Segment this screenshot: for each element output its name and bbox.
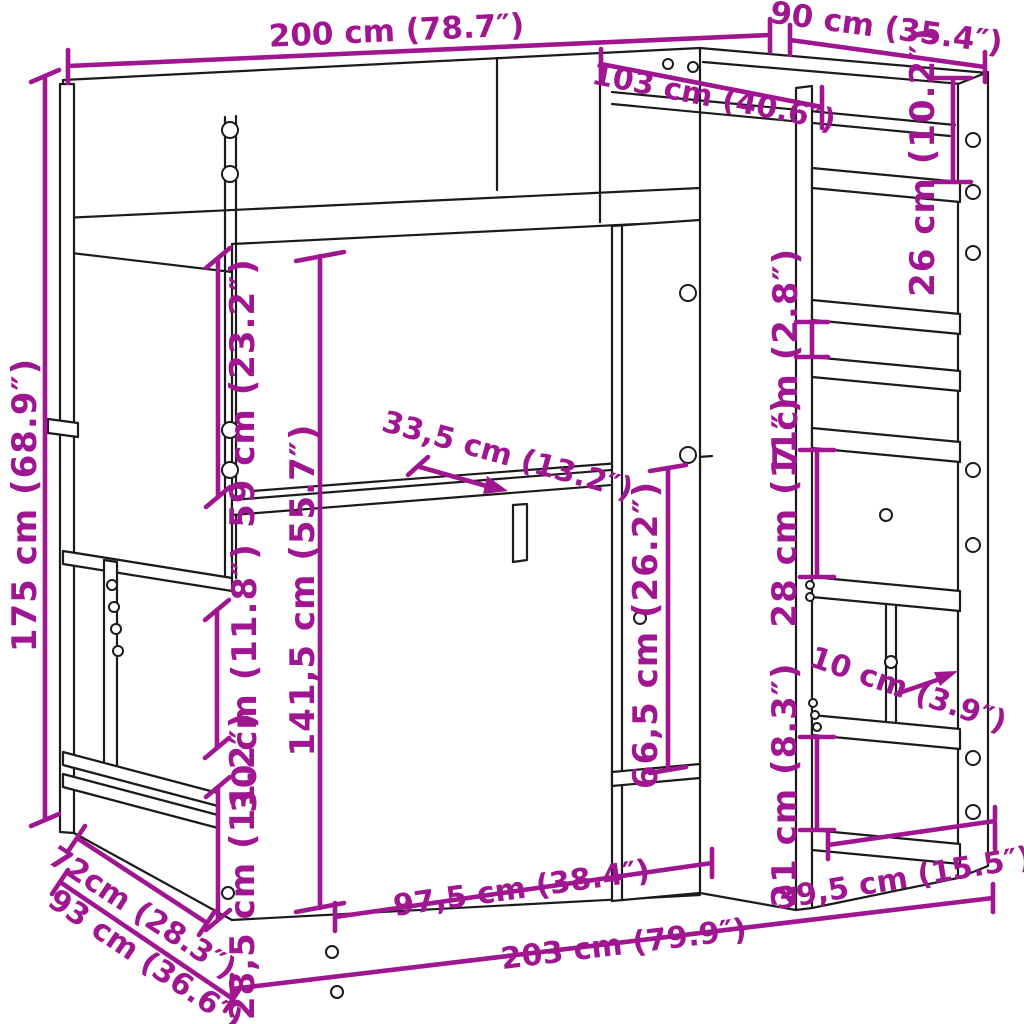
screw-cap-icon — [113, 646, 123, 656]
dim-label-top-shelf-gap: 26 cm (10.2″) — [903, 27, 943, 297]
dim-label-headboard-gap: 59 cm (23.2″) — [223, 258, 263, 528]
screw-cap-icon — [966, 463, 980, 477]
screw-cap-icon — [966, 185, 980, 199]
screw-cap-icon — [663, 59, 673, 69]
screw-cap-icon — [326, 946, 338, 958]
screw-cap-icon — [813, 723, 821, 731]
screw-cap-icon — [111, 624, 121, 634]
screw-cap-icon — [966, 751, 980, 765]
diagram-canvas: 200 cm (78.7″) 90 cm (35.4″) 103 cm (40.… — [0, 0, 1024, 1024]
screw-cap-icon — [966, 133, 980, 147]
dim-label-total-height: 175 cm (68.9″) — [5, 358, 45, 652]
screw-cap-icon — [680, 285, 696, 301]
screw-cap-icon — [966, 805, 980, 819]
screw-cap-icon — [966, 246, 980, 260]
screw-cap-icon — [809, 699, 817, 707]
left-leg — [60, 84, 74, 833]
screw-cap-icon — [688, 62, 698, 72]
screw-cap-icon — [680, 447, 696, 463]
screw-cap-icon — [107, 580, 117, 590]
dim-label-desk-clearance: 66,5 cm (26.2″) — [626, 481, 666, 789]
screw-cap-icon — [222, 122, 238, 138]
screw-cap-icon — [109, 602, 119, 612]
screw-cap-icon — [806, 581, 814, 589]
screw-cap-icon — [806, 593, 814, 601]
screw-cap-icon — [222, 166, 238, 182]
dim-label-shelf-gap-low: 21 cm (8.3″) — [765, 662, 805, 907]
bench-support-post — [104, 560, 117, 768]
screw-cap-icon — [880, 509, 892, 521]
dim-label-shelf-gap-mid: 28 cm (11″) — [765, 396, 805, 627]
wall-bracket — [48, 419, 78, 437]
dimension-diagram: 200 cm (78.7″) 90 cm (35.4″) 103 cm (40.… — [0, 0, 1024, 1024]
screw-cap-icon — [331, 986, 343, 998]
screw-cap-icon — [811, 711, 819, 719]
screw-cap-icon — [966, 538, 980, 552]
desk-support — [513, 504, 527, 562]
dim-label-underbed-height: 141,5 cm (55.7″) — [283, 424, 323, 757]
